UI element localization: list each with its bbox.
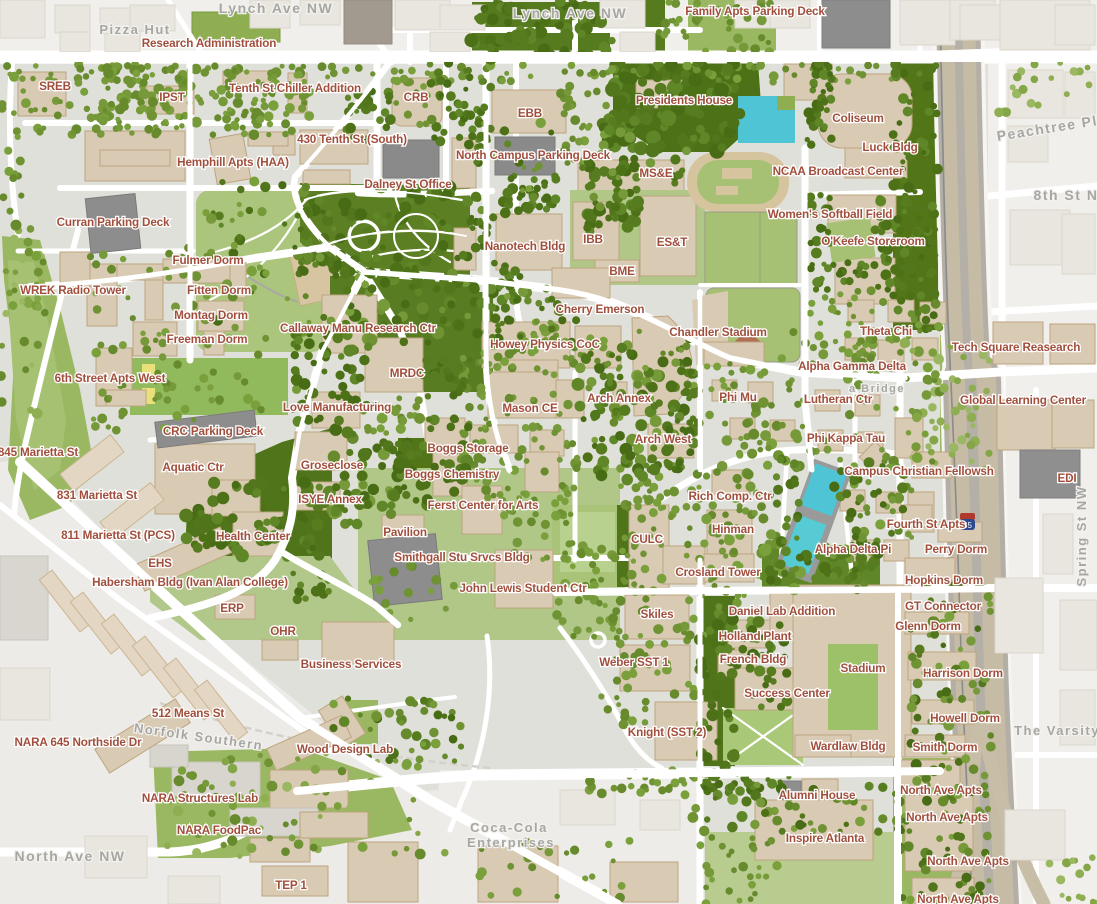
svg-text:Hopkins Dorm: Hopkins Dorm bbox=[905, 574, 983, 587]
svg-text:EBB: EBB bbox=[518, 107, 542, 120]
svg-text:ISYE Annex: ISYE Annex bbox=[298, 493, 362, 506]
svg-text:Wardlaw Bldg: Wardlaw Bldg bbox=[810, 740, 885, 753]
svg-text:John Lewis Student Ctr: John Lewis Student Ctr bbox=[459, 582, 587, 595]
svg-text:ES&T: ES&T bbox=[657, 236, 689, 249]
svg-text:Wood Design Lab: Wood Design Lab bbox=[297, 743, 393, 756]
svg-text:Theta Chi: Theta Chi bbox=[860, 325, 912, 338]
svg-text:Mason CE: Mason CE bbox=[502, 402, 558, 415]
svg-text:NCAA Broadcast Center: NCAA Broadcast Center bbox=[773, 165, 904, 178]
svg-text:Fitten Dorm: Fitten Dorm bbox=[187, 284, 251, 297]
svg-text:Alpha Delta Pi: Alpha Delta Pi bbox=[815, 543, 891, 556]
svg-text:Stadium: Stadium bbox=[840, 662, 885, 675]
svg-text:Phi Kappa Tau: Phi Kappa Tau bbox=[807, 432, 885, 445]
svg-text:Alumni House: Alumni House bbox=[779, 789, 856, 802]
svg-text:Luck Bldg: Luck Bldg bbox=[862, 141, 917, 154]
svg-text:Weber SST 1: Weber SST 1 bbox=[599, 656, 669, 669]
svg-text:Tenth St Chiller Addition: Tenth St Chiller Addition bbox=[229, 82, 361, 95]
svg-text:CULC: CULC bbox=[631, 533, 664, 546]
svg-text:North Campus Parking Deck: North Campus Parking Deck bbox=[456, 149, 611, 162]
svg-text:North Ave Apts: North Ave Apts bbox=[900, 784, 982, 797]
svg-text:Success Center: Success Center bbox=[744, 687, 830, 700]
svg-text:GT Connector: GT Connector bbox=[905, 600, 982, 613]
svg-text:Knight (SST 2): Knight (SST 2) bbox=[628, 726, 707, 739]
svg-text:Howell Dorm: Howell Dorm bbox=[930, 712, 1000, 725]
svg-text:SREB: SREB bbox=[39, 80, 71, 93]
svg-text:WREK Radio Tower: WREK Radio Tower bbox=[20, 284, 126, 297]
svg-text:TEP 1: TEP 1 bbox=[275, 879, 307, 892]
svg-text:Howey Physics CoC: Howey Physics CoC bbox=[490, 338, 601, 351]
svg-text:Aquatic Ctr: Aquatic Ctr bbox=[162, 461, 224, 474]
svg-text:Global Learning Center: Global Learning Center bbox=[960, 394, 1087, 407]
svg-text:811 Marietta St (PCS): 811 Marietta St (PCS) bbox=[61, 529, 175, 542]
svg-text:French Bldg: French Bldg bbox=[720, 653, 787, 666]
svg-text:430 Tenth St (South): 430 Tenth St (South) bbox=[297, 133, 407, 146]
svg-text:Presidents House: Presidents House bbox=[636, 94, 733, 107]
svg-text:Fourth St Apts: Fourth St Apts bbox=[887, 518, 966, 531]
svg-text:845 Marietta St: 845 Marietta St bbox=[0, 446, 78, 459]
svg-text:Groseclose: Groseclose bbox=[301, 459, 364, 472]
svg-text:Tech Square Reasearch: Tech Square Reasearch bbox=[952, 341, 1081, 354]
svg-text:CRC Parking Deck: CRC Parking Deck bbox=[163, 425, 264, 438]
svg-text:Health Center: Health Center bbox=[216, 530, 291, 543]
svg-text:Ferst Center for Arts: Ferst Center for Arts bbox=[428, 499, 539, 512]
svg-text:Coliseum: Coliseum bbox=[832, 112, 883, 125]
svg-text:ERP: ERP bbox=[220, 602, 244, 615]
svg-text:IBB: IBB bbox=[583, 233, 603, 246]
svg-text:Women's Softball Field: Women's Softball Field bbox=[768, 208, 893, 221]
svg-text:Family Apts Parking Deck: Family Apts Parking Deck bbox=[685, 5, 825, 18]
svg-text:North Ave Apts: North Ave Apts bbox=[906, 811, 988, 824]
svg-text:CRB: CRB bbox=[404, 91, 429, 104]
svg-text:Campus Christian Fellowsh: Campus Christian Fellowsh bbox=[844, 465, 994, 478]
svg-text:Hemphill Apts (HAA): Hemphill Apts (HAA) bbox=[177, 156, 289, 169]
svg-text:Perry Dorm: Perry Dorm bbox=[925, 543, 987, 556]
svg-text:IPST: IPST bbox=[159, 91, 185, 104]
svg-text:Chandler Stadium: Chandler Stadium bbox=[669, 326, 767, 339]
svg-text:Pizza Hut: Pizza Hut bbox=[99, 22, 170, 37]
svg-text:North Ave Apts: North Ave Apts bbox=[917, 893, 999, 904]
svg-text:Love Manufacturing: Love Manufacturing bbox=[283, 401, 391, 414]
svg-text:OHR: OHR bbox=[270, 625, 296, 638]
svg-text:Smithgall Stu Srvcs Bldg: Smithgall Stu Srvcs Bldg bbox=[394, 551, 529, 564]
svg-text:NARA FoodPac: NARA FoodPac bbox=[177, 824, 262, 837]
svg-text:Boggs Storage: Boggs Storage bbox=[427, 442, 509, 455]
svg-text:6th Street Apts West: 6th Street Apts West bbox=[55, 372, 166, 385]
svg-text:North Ave NW: North Ave NW bbox=[14, 848, 125, 864]
svg-text:O'Keefe Storeroom: O'Keefe Storeroom bbox=[821, 235, 925, 248]
svg-text:Pavilion: Pavilion bbox=[383, 526, 427, 539]
svg-text:Boggs Chemistry: Boggs Chemistry bbox=[405, 468, 500, 481]
svg-text:Crosland Tower: Crosland Tower bbox=[675, 566, 761, 579]
svg-text:Phi Mu: Phi Mu bbox=[719, 391, 756, 404]
svg-text:Callaway Manu Research Ctr: Callaway Manu Research Ctr bbox=[280, 322, 436, 335]
svg-text:Spring St NW: Spring St NW bbox=[1074, 485, 1089, 586]
svg-text:NARA 645 Northside Dr: NARA 645 Northside Dr bbox=[15, 736, 143, 749]
svg-text:a Bridge: a Bridge bbox=[849, 383, 905, 395]
svg-text:The Varsity: The Varsity bbox=[1014, 723, 1097, 738]
svg-text:North Ave Apts: North Ave Apts bbox=[927, 855, 1009, 868]
svg-text:Smith Dorm: Smith Dorm bbox=[913, 741, 978, 754]
svg-text:Research Administration: Research Administration bbox=[142, 37, 276, 50]
svg-text:NARA Structures Lab: NARA Structures Lab bbox=[142, 792, 258, 805]
svg-text:831 Marietta St: 831 Marietta St bbox=[57, 489, 138, 502]
svg-text:EHS: EHS bbox=[148, 557, 172, 570]
svg-text:Inspire Atlanta: Inspire Atlanta bbox=[786, 832, 865, 845]
svg-text:Montag Dorm: Montag Dorm bbox=[174, 309, 248, 322]
svg-text:Glenn Dorm: Glenn Dorm bbox=[895, 620, 960, 633]
svg-text:Hinman: Hinman bbox=[712, 523, 754, 536]
svg-text:Arch Annex: Arch Annex bbox=[587, 392, 651, 405]
svg-text:Dalney St Office: Dalney St Office bbox=[364, 178, 452, 191]
svg-text:Skiles: Skiles bbox=[641, 608, 675, 621]
svg-text:Coca-Cola: Coca-Cola bbox=[470, 820, 548, 835]
svg-text:Enterprises: Enterprises bbox=[467, 835, 555, 850]
svg-text:Freeman Dorm: Freeman Dorm bbox=[167, 333, 248, 346]
svg-text:Business Services: Business Services bbox=[301, 658, 402, 671]
svg-text:Lynch Ave NW: Lynch Ave NW bbox=[219, 0, 333, 16]
svg-text:MRDC: MRDC bbox=[390, 367, 425, 380]
svg-text:Curran Parking Deck: Curran Parking Deck bbox=[57, 216, 170, 229]
svg-text:Nanotech Bldg: Nanotech Bldg bbox=[485, 240, 566, 253]
svg-text:Rich Comp. Ctr: Rich Comp. Ctr bbox=[689, 490, 773, 503]
svg-text:Cherry Emerson: Cherry Emerson bbox=[556, 303, 645, 316]
svg-text:Holland Plant: Holland Plant bbox=[719, 630, 792, 643]
svg-text:Harrison Dorm: Harrison Dorm bbox=[923, 667, 1003, 680]
svg-text:512 Means St: 512 Means St bbox=[152, 707, 225, 720]
svg-text:Alpha Gamma Delta: Alpha Gamma Delta bbox=[798, 360, 907, 373]
svg-text:Lynch Ave NW: Lynch Ave NW bbox=[513, 5, 627, 21]
svg-text:Habersham Bldg (Ivan Alan Coll: Habersham Bldg (Ivan Alan College) bbox=[92, 576, 288, 589]
svg-text:MS&E: MS&E bbox=[639, 167, 673, 180]
svg-text:8th St N: 8th St N bbox=[1034, 187, 1097, 203]
svg-text:Fulmer Dorm: Fulmer Dorm bbox=[172, 254, 243, 267]
svg-text:Daniel Lab Addition: Daniel Lab Addition bbox=[729, 605, 835, 618]
svg-text:EDI: EDI bbox=[1057, 472, 1076, 485]
svg-text:BME: BME bbox=[609, 265, 635, 278]
svg-text:Arch West: Arch West bbox=[635, 433, 691, 446]
